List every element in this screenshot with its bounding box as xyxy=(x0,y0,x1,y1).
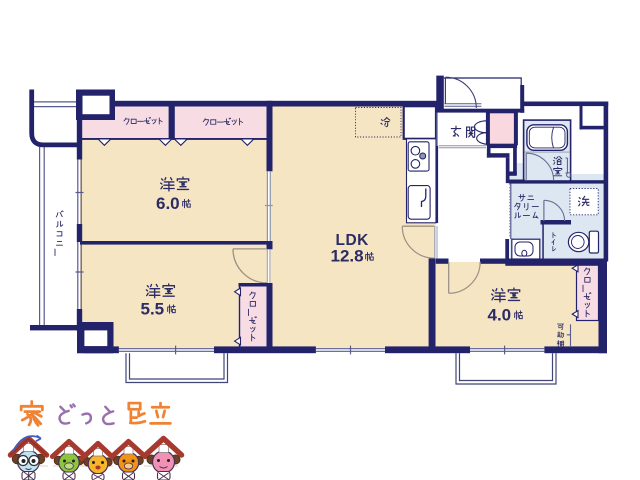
svg-text:12.8: 12.8 xyxy=(331,247,364,266)
svg-text:5.5: 5.5 xyxy=(141,300,165,319)
svg-text:4.0: 4.0 xyxy=(488,306,512,325)
svg-text:6.0: 6.0 xyxy=(156,194,180,213)
